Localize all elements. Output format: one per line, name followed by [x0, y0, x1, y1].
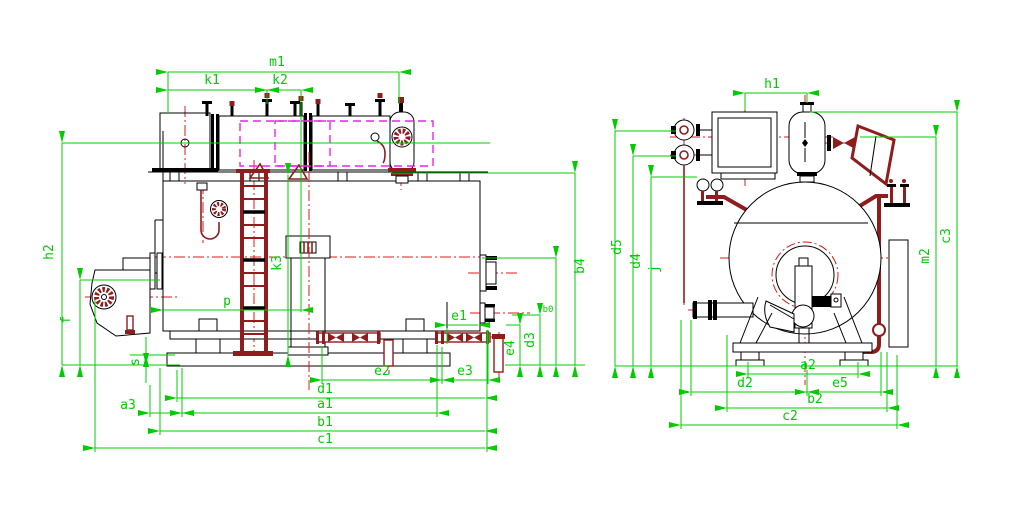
hose-station	[197, 183, 228, 239]
dim-label-d3: d3	[523, 332, 538, 348]
side-elevation-view: m1 k1 k2 h2 f s a3 p k3 e1 e2 e3 e4 d3 b…	[42, 55, 588, 452]
dim-label-a1: a1	[317, 397, 333, 412]
dim-label-d5: d5	[610, 239, 625, 255]
boiler-drawing-canvas: m1 k1 k2 h2 f s a3 p k3 e1 e2 e3 e4 d3 b…	[0, 0, 1011, 520]
flue-column	[286, 152, 330, 390]
inlet-chute	[852, 126, 894, 184]
dim-label-h1: h1	[764, 77, 780, 92]
dim-label-k2: k2	[272, 73, 288, 88]
dim-label-e5: e5	[832, 376, 848, 391]
feed-pumps	[671, 120, 712, 165]
dim-label-p: p	[223, 294, 231, 309]
dim-label-c1: c1	[317, 432, 333, 447]
end-elevation-view: h1 d5 d4 j m2 c3 a2 d2 e5 b2 c2	[610, 77, 958, 429]
dim-label-e4: e4	[503, 340, 518, 356]
dim-label-s: s	[128, 358, 143, 366]
drawing-sheet: m1 k1 k2 h2 f s a3 p k3 e1 e2 e3 e4 d3 b…	[0, 0, 1011, 520]
control-panel	[712, 112, 777, 179]
dim-label-d4: d4	[629, 253, 644, 269]
side-panel	[889, 240, 908, 347]
rear-nozzles	[480, 255, 497, 323]
sight-glass	[127, 316, 133, 330]
pressure-gauges	[697, 179, 723, 205]
dim-label-k3: k3	[270, 255, 285, 271]
dim-label-b1: b1	[317, 415, 333, 430]
dim-label-b0: b0	[543, 305, 554, 315]
dim-label-b4: b4	[573, 258, 588, 274]
ladder	[233, 169, 273, 356]
dim-label-e2: e2	[374, 364, 390, 379]
dim-label-f: f	[59, 316, 74, 324]
dim-label-c2: c2	[782, 409, 798, 424]
gauge-icon	[371, 133, 379, 141]
dim-label-k1: k1	[204, 73, 220, 88]
dim-label-m1: m1	[269, 55, 285, 70]
dim-label-c3: c3	[939, 228, 954, 244]
boiler-body	[148, 131, 488, 331]
dim-label-h2: h2	[42, 244, 57, 260]
dim-label-d1: d1	[317, 382, 333, 397]
burner	[90, 253, 162, 336]
dim-label-b2: b2	[807, 392, 823, 407]
shelf-valves	[884, 179, 910, 207]
flex-hose	[377, 141, 385, 163]
accumulator-tank	[789, 102, 860, 182]
dim-label-e1: e1	[451, 309, 467, 324]
dim-label-j: j	[647, 265, 662, 273]
dim-label-d2: d2	[737, 376, 753, 391]
left-pipe	[693, 300, 753, 320]
drum-top-valves	[202, 93, 404, 116]
dim-label-a3: a3	[120, 398, 136, 413]
dim-label-e3: e3	[457, 364, 473, 379]
dim-label-a2: a2	[800, 358, 816, 373]
dim-label-m2: m2	[918, 248, 933, 264]
